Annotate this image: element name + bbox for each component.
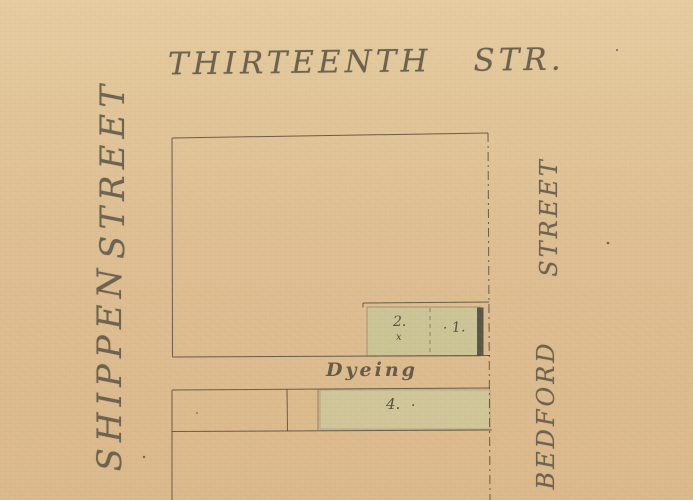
lot-number-2: 2.: [393, 314, 406, 330]
block-upper-left-line: [172, 138, 173, 357]
lot-2-mark: x: [396, 332, 402, 343]
block-lower-strip-line: [172, 430, 492, 432]
paper-speck: [616, 49, 618, 51]
street-name-thirteenth: THIRTEENTH: [168, 43, 432, 82]
street-label-thirteenth-row: THIRTEENTH STR.: [168, 42, 565, 83]
block-upper-top-line: [172, 133, 488, 138]
dyeing-label: Dyeing: [324, 359, 420, 381]
lot-number-1: · 1.: [442, 319, 465, 337]
street-label-shippen: SHIPPEN: [88, 207, 132, 500]
paper-speck: [143, 456, 145, 458]
paper-speck: [196, 412, 198, 414]
lot-divider-thick-line: [287, 389, 288, 431]
atlas-map-page: THIRTEENTH STR. STREET SHIPPEN STREET BE…: [0, 0, 693, 500]
building-wash-lot-4: [320, 390, 490, 429]
boundary-dashdot-line: [488, 133, 490, 500]
firewall-bar: [477, 308, 484, 356]
lot-number-4: 4.: [386, 395, 400, 413]
street-abbr: STR.: [473, 42, 565, 79]
paper-speck: [607, 242, 610, 245]
lot-4-mark: ·: [411, 398, 415, 414]
street-label-bedford: BEDFORD: [528, 295, 564, 500]
